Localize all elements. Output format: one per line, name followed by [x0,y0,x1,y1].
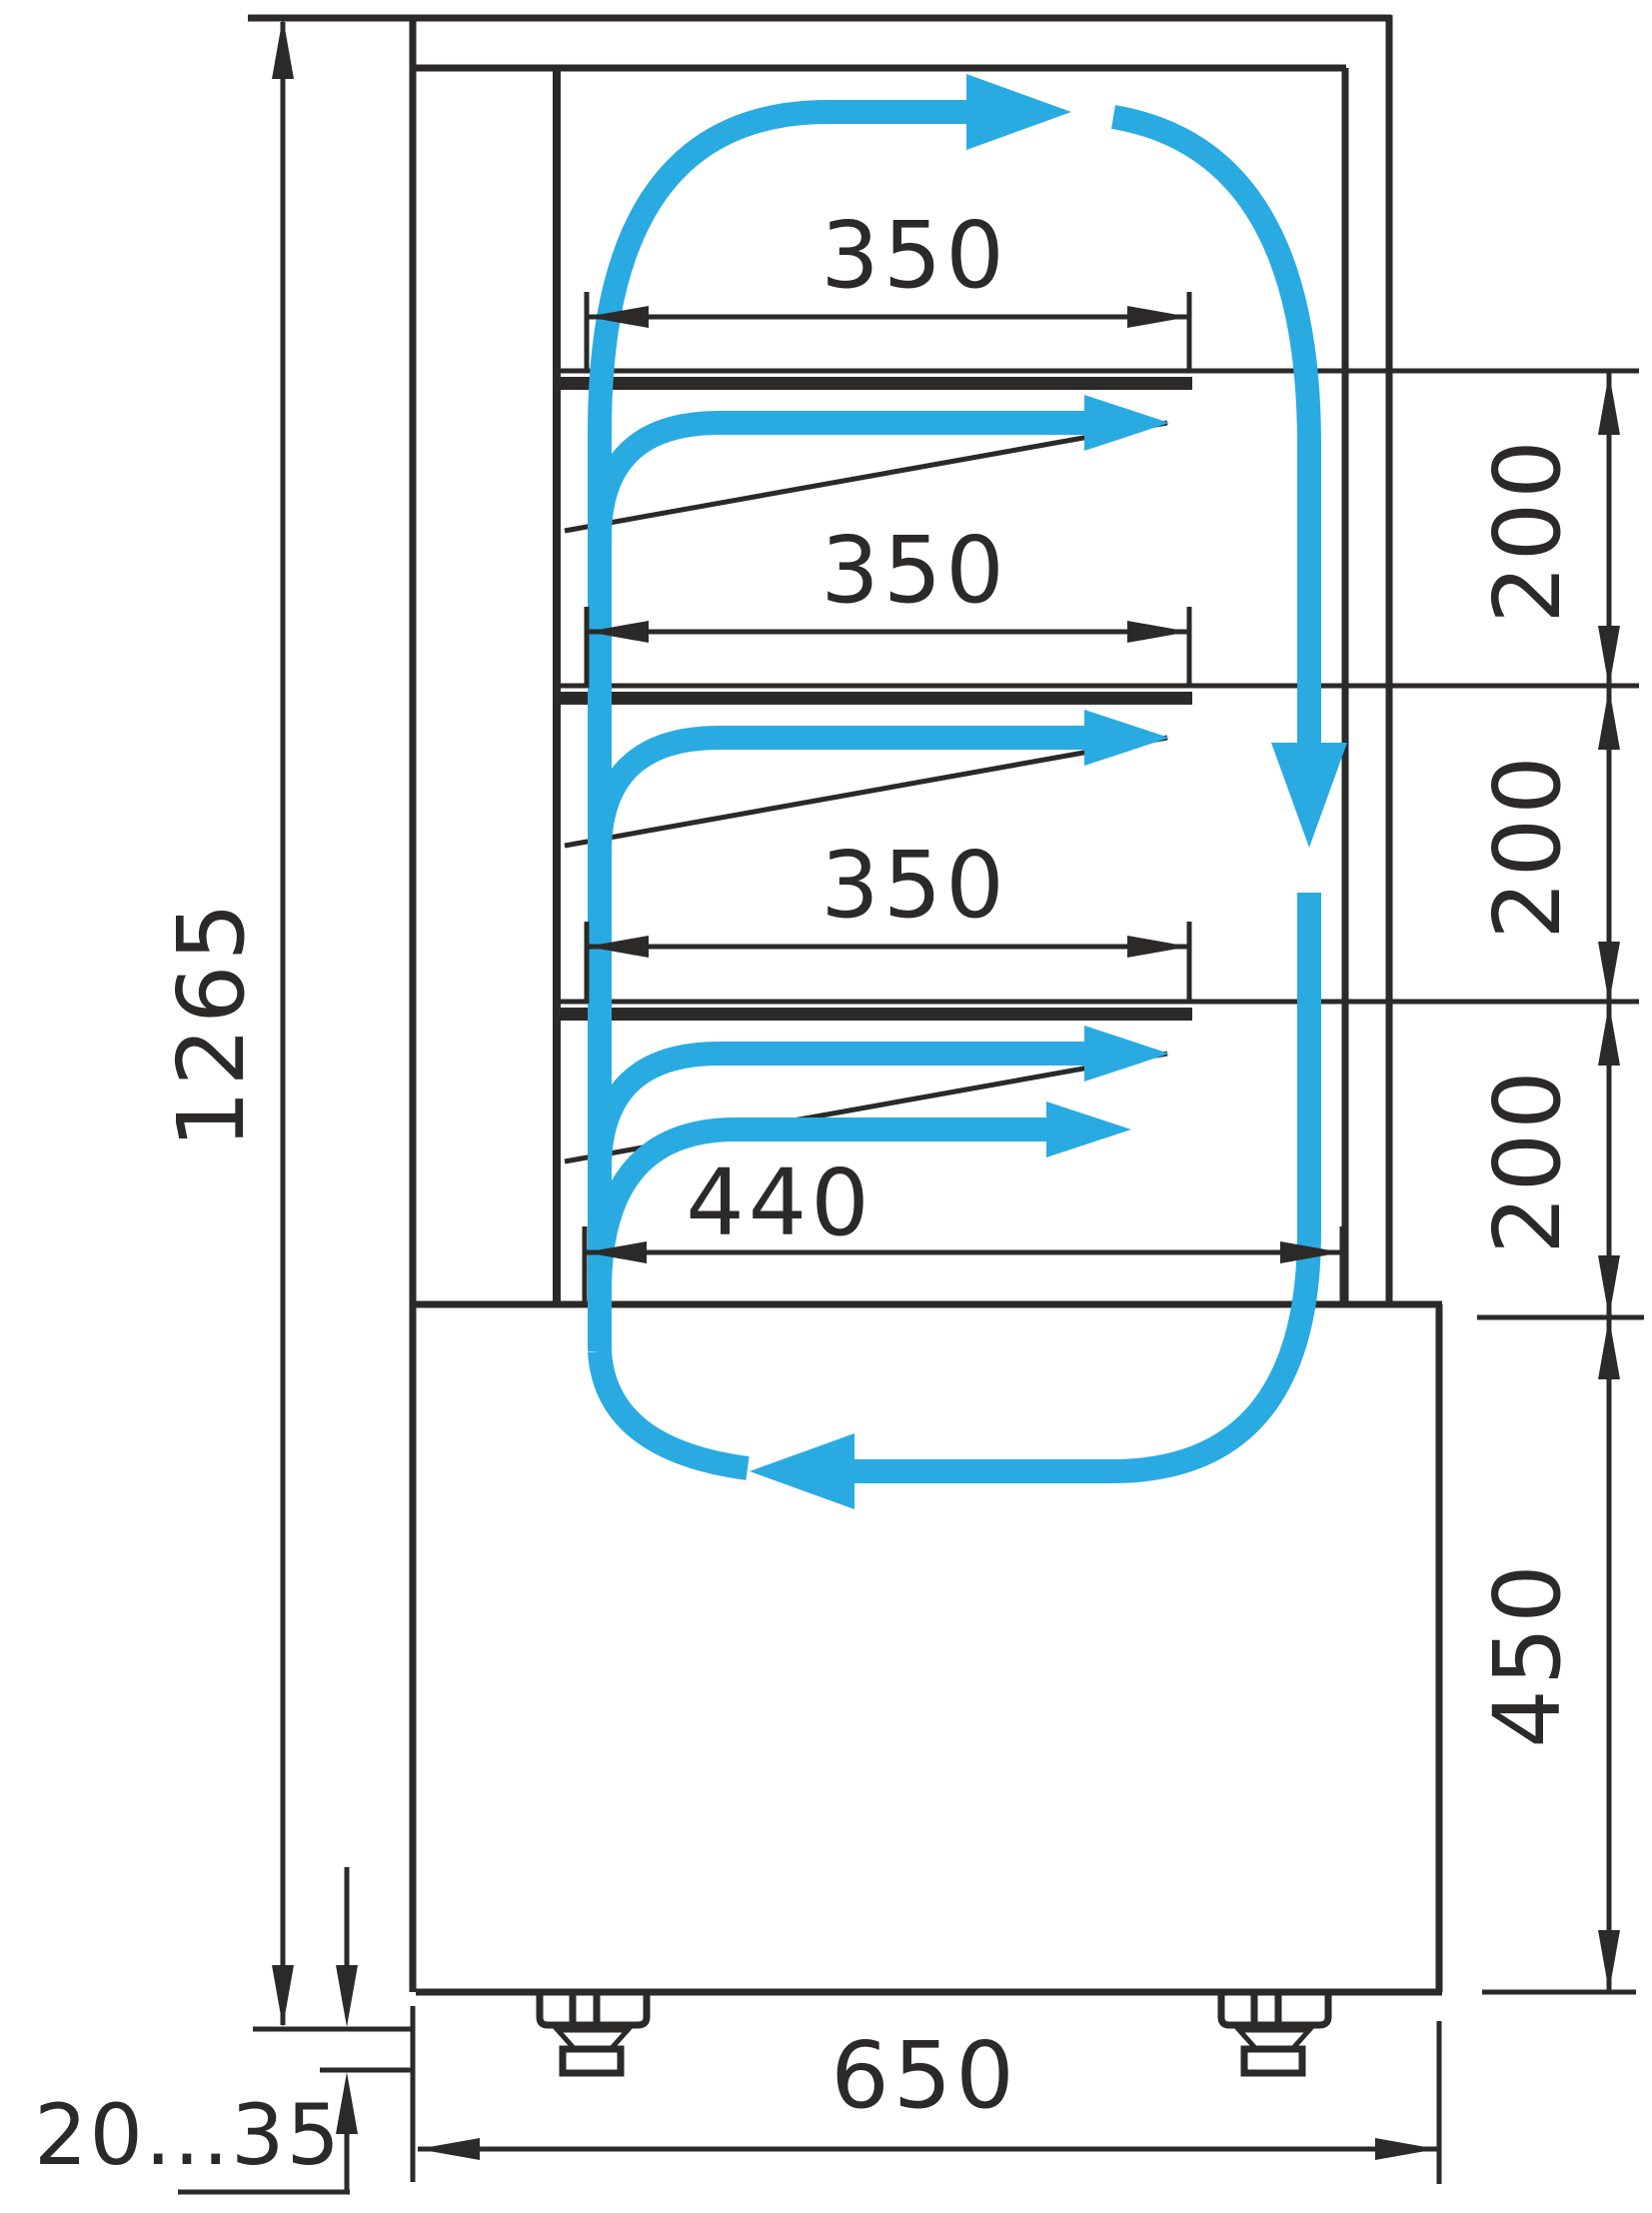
dim-650-right-arrowhead-icon [1375,2138,1437,2160]
dim-2035-label: 20...35 [34,2086,342,2184]
dim-350-3-label: 350 [821,832,1008,939]
airflow-branch-3-arrowhead-icon [1084,1026,1169,1082]
dim-shelf-depth-3: 350 [587,832,1189,1004]
chain-arrowhead-down-1004-icon [1598,942,1620,1004]
airflow-branch-4-arrowhead-icon [1046,1102,1131,1157]
shelf-2-bar [553,692,1192,705]
airflow-top-arrowhead-icon [966,74,1071,150]
right-foot-pad [1244,2049,1302,2073]
dim-650-left-arrowhead-icon [418,2138,480,2160]
dim-2035-down-arrowhead-icon [336,1965,358,2027]
chain-arrowhead-up-688-icon [1598,688,1620,750]
dim-1265-label: 1265 [158,899,265,1148]
dim-chain-right: 200 200 200 450 [1474,373,1644,1992]
dim-200-1-label: 200 [1474,436,1581,624]
airflow-left-arrowhead-icon [750,1433,854,1509]
airflow-branch-1-arrowhead-icon [1084,395,1169,451]
dim-shelf-depth-2: 350 [587,517,1189,688]
dim-1265-down-arrowhead-icon [272,1965,294,2027]
dim-shelf-depth-1: 350 [587,202,1189,373]
right-foot [1221,1992,1328,2073]
dim-200-2-label: 200 [1474,752,1581,940]
chain-arrowhead-down-1993-icon [1598,1930,1620,1992]
airflow-down-arrowhead-icon [1271,743,1347,848]
dim-overall-depth: 650 [413,2006,1439,2184]
dim-350-1-label: 350 [821,202,1008,309]
display-case-diagram: 1265 350 350 350 440 [0,0,1652,2213]
airflow-bottom-left-arc [600,1351,748,1468]
dim-350-2-label: 350 [821,517,1008,624]
chain-arrowhead-down-1318-icon [1598,1255,1620,1317]
dim-440-label: 440 [686,1149,873,1256]
shelf-1-bar [553,377,1192,390]
chain-arrowhead-up-1004-icon [1598,1004,1620,1066]
left-foot-pad [563,2049,621,2073]
dim-bottom-depth: 440 [585,1149,1342,1302]
chain-arrowhead-down-688-icon [1598,626,1620,688]
shelf-3-bar [553,1008,1192,1021]
chain-arrowhead-up-1318-icon [1598,1317,1620,1379]
dim-200-3-label: 200 [1474,1067,1581,1254]
airflow-branch-2-arrowhead-icon [1084,710,1169,766]
dim-350-1-right-arrowhead-icon [1127,306,1189,328]
dim-450-label: 450 [1474,1560,1581,1748]
dim-650-label: 650 [830,2022,1018,2129]
airflow-bottom-return [851,893,1309,1471]
dim-350-2-right-arrowhead-icon [1127,621,1189,643]
dim-350-3-right-arrowhead-icon [1127,936,1189,958]
dim-1265-up-arrowhead-icon [272,17,294,79]
dim-feet-range: 20...35 [34,1867,413,2192]
left-foot [540,1992,647,2073]
dim-overall-height: 1265 [158,17,294,2027]
drawing-page: 1265 350 350 350 440 [0,0,1652,2213]
chain-arrowhead-up-373-icon [1598,373,1620,435]
